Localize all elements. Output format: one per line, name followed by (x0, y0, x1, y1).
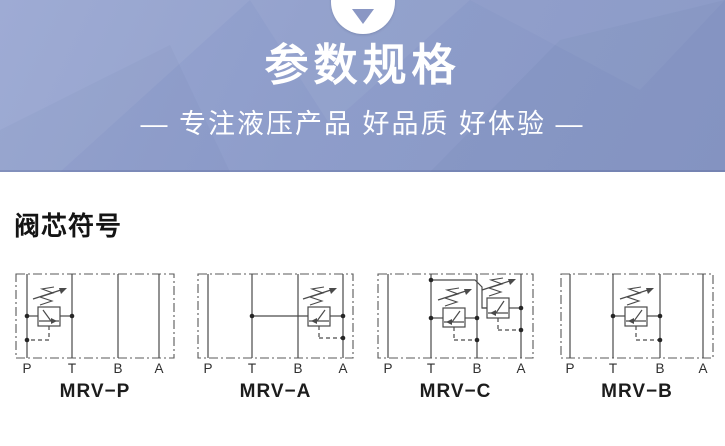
valve-schematic-mrv-a: PTBA (196, 272, 355, 378)
port-label: B (472, 361, 481, 376)
port-label: T (609, 361, 617, 376)
port-label: B (293, 361, 302, 376)
diagram-caption: MRV−B (559, 381, 715, 403)
section-heading: 阀芯符号 (14, 206, 122, 243)
triangle-down-icon (352, 9, 374, 24)
diagram-caption: MRV−C (376, 381, 535, 403)
port-label: A (516, 361, 525, 376)
port-label: P (383, 361, 392, 376)
port-label: T (68, 361, 76, 376)
diagram-caption: MRV−A (196, 381, 355, 403)
port-label: A (338, 361, 347, 376)
valve-schematic-mrv-b: PTBA (559, 272, 715, 378)
port-label: A (154, 361, 163, 376)
banner-subtitle: — 专注液压产品 好品质 好体验 — (0, 110, 725, 140)
banner-title: 参数规格 (0, 44, 725, 88)
port-label: P (22, 361, 31, 376)
header-banner: 参数规格 — 专注液压产品 好品质 好体验 — (0, 0, 725, 172)
diagram-caption: MRV−P (14, 381, 176, 403)
valve-diagram-mrv-b: PTBA MRV−B (559, 272, 715, 403)
valve-diagram-mrv-c: PTBA MRV−C (376, 272, 535, 403)
port-label: B (113, 361, 122, 376)
port-label: B (655, 361, 664, 376)
port-label: T (427, 361, 435, 376)
valve-diagram-mrv-a: PTBA MRV−A (196, 272, 355, 403)
port-label: P (565, 361, 574, 376)
valve-diagram-mrv-p: PTBA MRV−P (14, 272, 176, 403)
valve-schematic-mrv-p: PTBA (14, 272, 176, 378)
port-label: T (248, 361, 256, 376)
port-label: P (203, 361, 212, 376)
port-label: A (698, 361, 707, 376)
valve-schematic-mrv-c: PTBA (376, 272, 535, 378)
page: 参数规格 — 专注液压产品 好品质 好体验 — 阀芯符号 PTBA MRV−P … (0, 0, 725, 446)
